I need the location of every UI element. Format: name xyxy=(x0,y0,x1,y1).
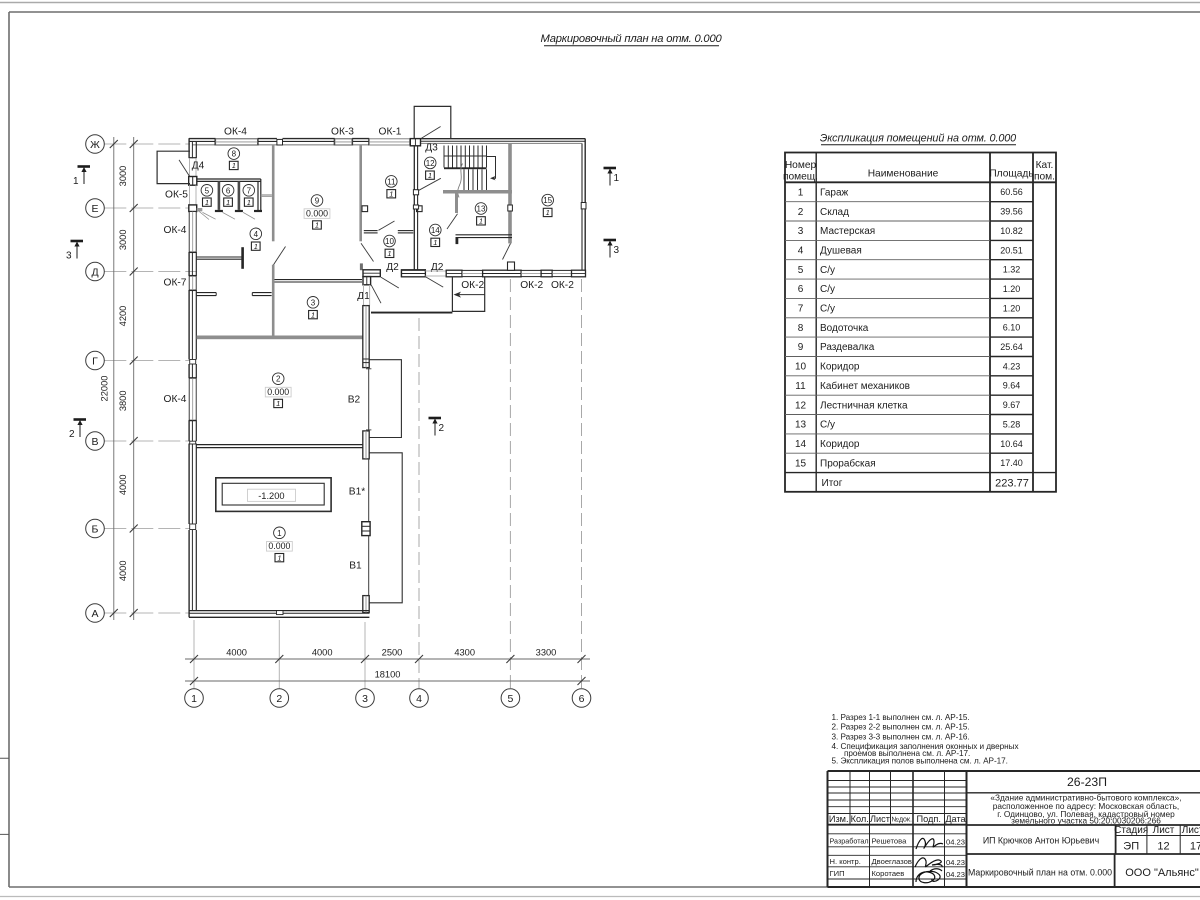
svg-text:ОК-1: ОК-1 xyxy=(379,127,402,138)
svg-text:Д4: Д4 xyxy=(192,160,205,171)
svg-text:ОК-3: ОК-3 xyxy=(331,127,354,138)
svg-text:Маркировочный план на отм. 0.0: Маркировочный план на отм. 0.000 xyxy=(968,868,1112,878)
svg-text:Склад: Склад xyxy=(820,207,849,218)
svg-text:5: 5 xyxy=(507,693,513,705)
svg-text:60.56: 60.56 xyxy=(1000,187,1023,197)
svg-text:18100: 18100 xyxy=(375,670,401,680)
svg-text:2: 2 xyxy=(798,207,804,218)
svg-text:1: 1 xyxy=(546,208,550,217)
svg-text:Кол.: Кол. xyxy=(851,814,869,824)
svg-text:3300: 3300 xyxy=(536,648,557,658)
svg-text:4200: 4200 xyxy=(118,306,128,327)
svg-text:ОК-2: ОК-2 xyxy=(520,280,543,291)
svg-text:12: 12 xyxy=(795,400,807,411)
svg-text:2: 2 xyxy=(439,423,445,434)
svg-text:11: 11 xyxy=(795,381,806,392)
svg-text:Душевая: Душевая xyxy=(820,246,862,257)
svg-text:Д2: Д2 xyxy=(386,262,399,273)
svg-text:26-23П: 26-23П xyxy=(1067,775,1107,789)
svg-text:25.64: 25.64 xyxy=(1000,342,1023,352)
svg-text:Двоеглазов: Двоеглазов xyxy=(872,857,912,866)
svg-text:1: 1 xyxy=(479,217,483,226)
svg-text:1: 1 xyxy=(254,242,258,251)
svg-text:1: 1 xyxy=(798,187,804,198)
svg-text:Изм.: Изм. xyxy=(829,814,849,824)
svg-text:1: 1 xyxy=(277,553,281,562)
svg-text:Мастерская: Мастерская xyxy=(820,226,875,237)
svg-text:11: 11 xyxy=(387,177,396,186)
svg-text:Коридор: Коридор xyxy=(820,439,860,450)
svg-text:помещ.: помещ. xyxy=(783,172,818,183)
svg-text:9.64: 9.64 xyxy=(1003,381,1021,391)
svg-text:4.23: 4.23 xyxy=(1003,361,1021,371)
svg-text:Кабинет механиков: Кабинет механиков xyxy=(820,380,910,392)
svg-text:ОК-4: ОК-4 xyxy=(164,394,187,405)
svg-text:6: 6 xyxy=(226,186,231,195)
svg-text:12: 12 xyxy=(1157,841,1169,853)
svg-text:Лист: Лист xyxy=(1153,825,1175,836)
svg-text:10: 10 xyxy=(795,362,807,373)
svg-text:10.64: 10.64 xyxy=(1000,439,1023,449)
svg-text:Листов: Листов xyxy=(1182,825,1200,836)
svg-text:Н. контр.: Н. контр. xyxy=(830,857,861,866)
svg-text:С/у: С/у xyxy=(820,420,835,431)
svg-text:2: 2 xyxy=(276,375,281,384)
svg-text:4000: 4000 xyxy=(118,560,128,581)
svg-text:1: 1 xyxy=(232,161,236,170)
svg-text:04.23: 04.23 xyxy=(946,858,965,867)
svg-text:9: 9 xyxy=(798,342,804,353)
svg-text:9.67: 9.67 xyxy=(1003,400,1021,410)
svg-text:3000: 3000 xyxy=(118,166,128,187)
svg-text:Экспликация помещений на отм.: Экспликация помещений на отм. 0.000 xyxy=(820,133,1016,145)
svg-text:5. Экспликация полов выполнена: 5. Экспликация полов выполнена см. л. АР… xyxy=(832,756,1008,765)
svg-text:А: А xyxy=(91,608,98,620)
svg-text:4: 4 xyxy=(798,246,804,257)
svg-text:13: 13 xyxy=(795,420,807,431)
svg-text:17.40: 17.40 xyxy=(1000,458,1023,468)
svg-text:3800: 3800 xyxy=(118,390,128,411)
svg-text:22000: 22000 xyxy=(100,376,110,402)
svg-text:Кат.: Кат. xyxy=(1036,160,1054,171)
svg-text:13: 13 xyxy=(477,205,486,214)
svg-text:Д3: Д3 xyxy=(425,143,438,154)
svg-text:Раздевалка: Раздевалка xyxy=(820,342,875,353)
svg-text:5: 5 xyxy=(798,265,804,276)
svg-text:17: 17 xyxy=(1190,841,1200,853)
svg-text:1: 1 xyxy=(387,249,391,258)
svg-text:15: 15 xyxy=(795,458,807,469)
svg-text:3: 3 xyxy=(66,251,72,262)
svg-text:0.000: 0.000 xyxy=(306,208,328,218)
svg-text:ОК-4: ОК-4 xyxy=(224,127,247,138)
svg-text:Наименование: Наименование xyxy=(868,169,939,180)
svg-text:2: 2 xyxy=(276,693,282,705)
svg-text:Решетова: Решетова xyxy=(872,837,908,846)
svg-text:В: В xyxy=(91,436,98,448)
svg-text:1: 1 xyxy=(428,171,432,180)
svg-text:С/у: С/у xyxy=(820,265,835,276)
svg-text:Подп.: Подп. xyxy=(916,814,940,824)
svg-text:Итог: Итог xyxy=(822,478,843,489)
svg-text:1: 1 xyxy=(205,198,209,207)
svg-text:3: 3 xyxy=(798,226,804,237)
svg-text:ООО "Альянс": ООО "Альянс" xyxy=(1125,867,1199,879)
svg-text:5.28: 5.28 xyxy=(1003,419,1021,429)
svg-text:4: 4 xyxy=(416,693,422,705)
svg-text:Д: Д xyxy=(91,266,98,278)
svg-text:1: 1 xyxy=(614,173,620,184)
svg-text:4000: 4000 xyxy=(312,648,333,658)
svg-text:Площадь: Площадь xyxy=(989,169,1033,180)
svg-text:2. Разрез 2-2 выполнен см. л.: 2. Разрез 2-2 выполнен см. л. АР-15. xyxy=(832,723,970,732)
svg-text:14: 14 xyxy=(795,439,807,450)
svg-text:4300: 4300 xyxy=(454,648,475,658)
svg-text:3: 3 xyxy=(614,245,620,256)
svg-text:Коротаев: Коротаев xyxy=(872,869,905,878)
svg-text:8: 8 xyxy=(798,323,804,334)
svg-text:Дата: Дата xyxy=(945,814,966,824)
svg-text:1: 1 xyxy=(433,238,437,247)
svg-text:12: 12 xyxy=(426,159,435,168)
svg-text:1: 1 xyxy=(191,693,197,705)
svg-text:1.20: 1.20 xyxy=(1003,303,1021,313)
svg-text:В1*: В1* xyxy=(349,487,365,498)
svg-text:Лист: Лист xyxy=(870,814,891,824)
svg-text:3000: 3000 xyxy=(118,229,128,250)
svg-text:Е: Е xyxy=(91,203,98,215)
svg-text:2: 2 xyxy=(69,429,75,440)
svg-text:Г: Г xyxy=(92,355,98,367)
svg-text:1: 1 xyxy=(247,198,251,207)
svg-text:С/у: С/у xyxy=(820,304,835,315)
svg-text:2500: 2500 xyxy=(382,648,403,658)
svg-text:В1: В1 xyxy=(349,561,362,572)
svg-text:4000: 4000 xyxy=(118,474,128,495)
svg-text:3. Разрез 3-3 выполнен см. л.: 3. Разрез 3-3 выполнен см. л. АР-16. xyxy=(832,732,970,741)
svg-text:8: 8 xyxy=(232,150,237,159)
svg-text:6: 6 xyxy=(798,284,804,295)
svg-text:1: 1 xyxy=(276,399,280,408)
svg-text:4000: 4000 xyxy=(226,648,247,658)
svg-text:Лестничная клетка: Лестничная клетка xyxy=(820,400,908,411)
svg-text:1: 1 xyxy=(277,529,282,538)
svg-text:Стадия: Стадия xyxy=(1114,825,1148,836)
svg-text:3: 3 xyxy=(311,298,316,307)
svg-text:№док.: №док. xyxy=(891,817,912,824)
svg-text:6: 6 xyxy=(579,693,585,705)
svg-text:9: 9 xyxy=(315,197,320,206)
svg-text:ОК-2: ОК-2 xyxy=(461,280,484,291)
svg-text:3: 3 xyxy=(362,693,368,705)
svg-text:С/у: С/у xyxy=(820,284,835,295)
svg-text:1: 1 xyxy=(73,176,79,187)
svg-text:ОК-2: ОК-2 xyxy=(551,280,574,291)
svg-text:7: 7 xyxy=(247,186,252,195)
svg-text:ГИП: ГИП xyxy=(830,869,845,878)
svg-text:ОК-7: ОК-7 xyxy=(164,278,187,289)
svg-text:ОК-5: ОК-5 xyxy=(165,190,188,201)
svg-text:0.000: 0.000 xyxy=(267,387,289,397)
svg-text:6.10: 6.10 xyxy=(1003,323,1021,333)
svg-text:Маркировочный план на отм. 0.0: Маркировочный план на отм. 0.000 xyxy=(541,33,723,45)
svg-text:пом.: пом. xyxy=(1034,172,1055,183)
svg-text:Гараж: Гараж xyxy=(820,187,849,198)
svg-text:ЭП: ЭП xyxy=(1123,841,1139,853)
svg-text:39.56: 39.56 xyxy=(1000,207,1023,217)
svg-text:В2: В2 xyxy=(348,395,361,406)
svg-text:ОК-4: ОК-4 xyxy=(164,225,187,236)
svg-text:20.51: 20.51 xyxy=(1000,245,1023,255)
svg-text:5: 5 xyxy=(205,186,210,195)
svg-text:14: 14 xyxy=(431,226,440,235)
svg-text:Ж: Ж xyxy=(90,139,100,151)
svg-text:04.23: 04.23 xyxy=(946,870,965,879)
svg-text:Номер: Номер xyxy=(785,160,817,171)
svg-text:1: 1 xyxy=(315,221,319,230)
svg-text:Прорабская: Прорабская xyxy=(820,457,876,469)
svg-text:ИП Крючков Антон Юрьевич: ИП Крючков Антон Юрьевич xyxy=(983,836,1099,846)
svg-text:Коридор: Коридор xyxy=(820,362,860,373)
svg-text:1: 1 xyxy=(226,198,230,207)
svg-text:4: 4 xyxy=(254,230,259,239)
svg-text:15: 15 xyxy=(543,196,552,205)
svg-text:-1.200: -1.200 xyxy=(258,491,284,501)
svg-text:10.82: 10.82 xyxy=(1000,226,1023,236)
svg-text:7: 7 xyxy=(798,304,804,315)
svg-text:Разработал: Разработал xyxy=(830,837,869,846)
svg-text:Б: Б xyxy=(92,523,99,535)
svg-text:223.77: 223.77 xyxy=(995,478,1029,490)
svg-text:Водоточка: Водоточка xyxy=(820,323,869,334)
svg-text:10: 10 xyxy=(385,237,394,246)
svg-text:1. Разрез 1-1 выполнен см. л.: 1. Разрез 1-1 выполнен см. л. АР-15. xyxy=(832,713,970,722)
svg-text:1.32: 1.32 xyxy=(1003,265,1021,275)
svg-text:1: 1 xyxy=(311,310,315,319)
svg-text:0.000: 0.000 xyxy=(268,541,290,551)
svg-text:1.20: 1.20 xyxy=(1003,284,1021,294)
svg-text:04.23: 04.23 xyxy=(946,838,965,847)
svg-text:1: 1 xyxy=(389,189,393,198)
